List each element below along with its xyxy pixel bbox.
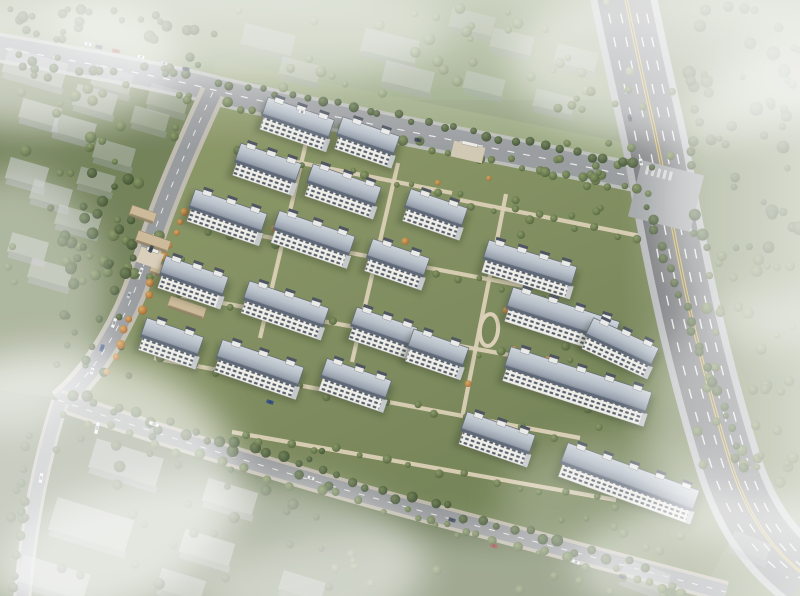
aerial-rendering-image: [0, 0, 800, 596]
scene-svg: [0, 0, 800, 596]
haze-overlay-layer: [0, 0, 800, 596]
haze-wash: [0, 0, 800, 596]
